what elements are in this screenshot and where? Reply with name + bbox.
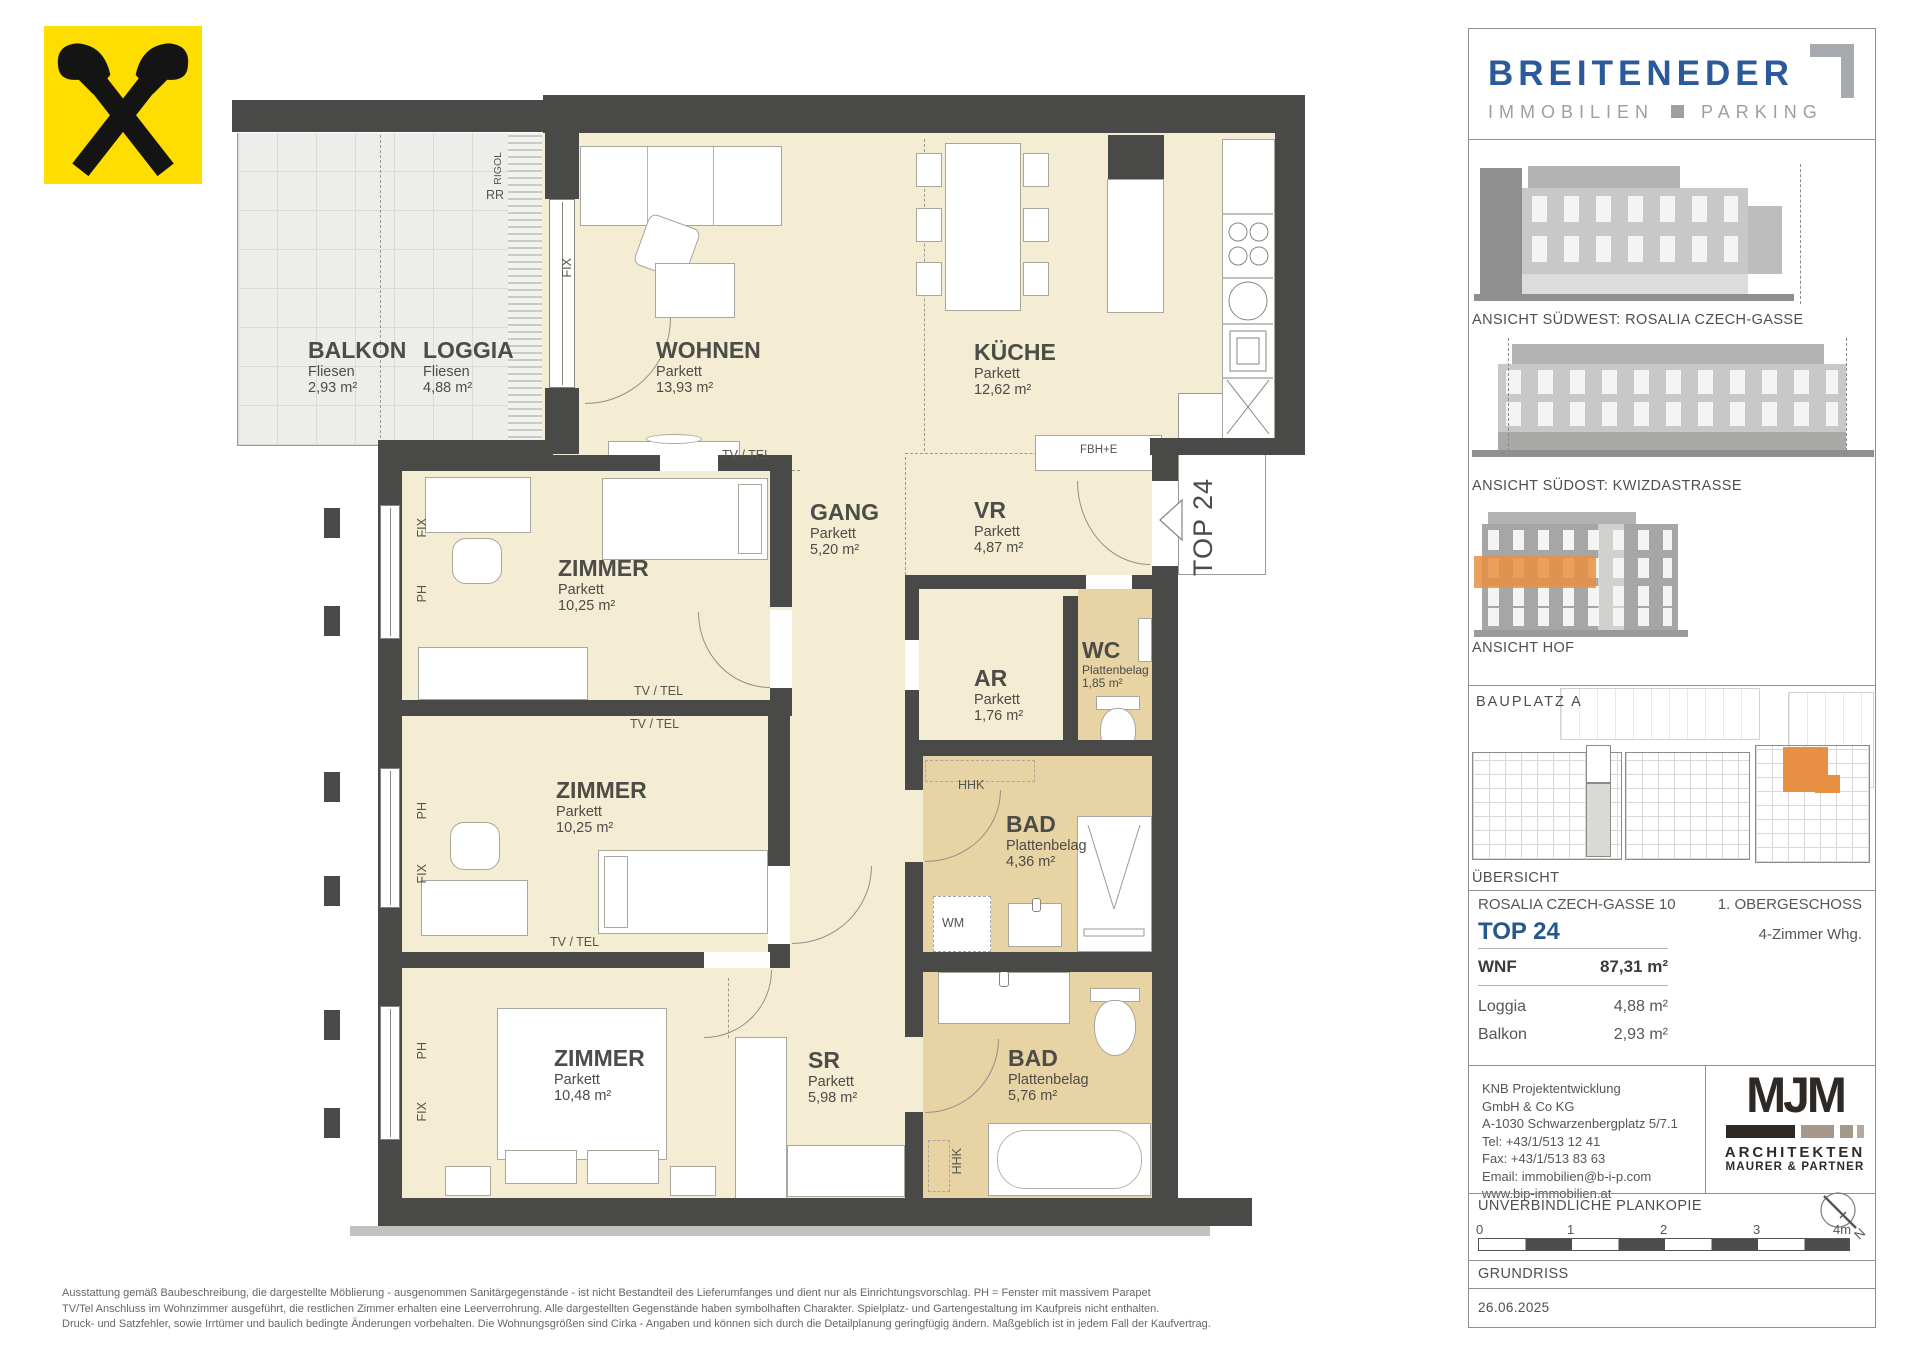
ph-label: PH (415, 585, 429, 602)
wall (1152, 455, 1178, 481)
rigol-label: RIGOL (492, 152, 504, 185)
wardrobe (735, 1037, 787, 1200)
window-fin (324, 1108, 340, 1138)
wall (543, 95, 1305, 133)
door-opening (704, 952, 770, 968)
drain-hatch (508, 133, 542, 445)
tv-tel-label: TV / TEL (630, 717, 679, 731)
room-label-zimmer-3: ZIMMER Parkett 10,48 m² (554, 1046, 645, 1104)
fix-label: FIX (415, 518, 429, 537)
room-floor: Parkett (556, 804, 647, 820)
fix-label: FIX (415, 864, 429, 883)
chair (1023, 262, 1049, 296)
room-area: 4,87 m² (974, 540, 1023, 556)
site-plan-label: BAUPLATZ A (1476, 694, 1583, 710)
pillow (738, 484, 762, 554)
bathtub-inner (997, 1130, 1142, 1189)
room-area: 10,25 m² (558, 598, 649, 614)
wall (400, 700, 788, 716)
contact-line: GmbH & Co KG (1482, 1098, 1698, 1116)
wall (905, 756, 923, 790)
site-stair-tower (1586, 745, 1611, 783)
plan-page: BALKON Fliesen 2,93 m² LOGGIA Fliesen 4,… (0, 0, 1920, 1357)
wall (1152, 1198, 1252, 1226)
wall (905, 862, 923, 952)
brand-category-parking: PARKING (1701, 102, 1823, 122)
chair (916, 262, 942, 296)
architect-initials: MJM (1722, 1067, 1868, 1125)
room-label-loggia: LOGGIA Fliesen 4,88 m² (423, 338, 514, 396)
room-label-vr: VR Parkett 4,87 m² (974, 498, 1023, 556)
elevation-block (1480, 168, 1522, 298)
shower-drain-icon (1078, 817, 1150, 950)
wall (1108, 135, 1164, 179)
wall (905, 972, 923, 1037)
room-floor: Plattenbelag (1082, 664, 1149, 677)
wall (1150, 438, 1305, 455)
project-floor: 1. OBERGESCHOSS (1660, 896, 1862, 913)
wall (1275, 95, 1305, 447)
bathtub (988, 1123, 1151, 1196)
room-name: BAD (1006, 812, 1087, 838)
window-fin (324, 772, 340, 802)
wardrobe (418, 647, 588, 700)
wall (770, 952, 790, 968)
balcony-loggia-tiles (237, 133, 509, 446)
wardrobe (787, 1145, 905, 1197)
door-opening (905, 640, 919, 690)
site-plan-caption: ÜBERSICHT (1472, 870, 1559, 886)
room-floor: Plattenbelag (1008, 1072, 1089, 1088)
project-address: ROSALIA CZECH-GASSE 10 (1478, 896, 1676, 913)
unit-type: 4-Zimmer Whg. (1660, 926, 1862, 943)
site-building (1625, 752, 1750, 860)
room-label-gang: GANG Parkett 5,20 m² (810, 500, 879, 558)
room-label-zimmer-1: ZIMMER Parkett 10,25 m² (558, 556, 649, 614)
pillow (604, 856, 628, 928)
elevation-ground-floor (1498, 432, 1846, 450)
room-label-zimmer-2: ZIMMER Parkett 10,25 m² (556, 778, 647, 836)
room-name: KÜCHE (974, 340, 1056, 366)
chair (916, 153, 942, 187)
chair (1023, 208, 1049, 242)
fix-label: FIX (560, 258, 574, 277)
elevation-hof-caption: ANSICHT HOF (1472, 640, 1574, 656)
fix-label: FIX (415, 1102, 429, 1121)
elevation-window-row (1506, 402, 1838, 426)
room-name: ZIMMER (554, 1046, 645, 1072)
window-fin (324, 876, 340, 906)
faucet (1032, 898, 1041, 912)
square-bullet-icon (1671, 105, 1684, 118)
disclaimer-line: Druck- und Satzfehler, sowie Irrtümer un… (62, 1317, 1211, 1333)
room-floor: Fliesen (423, 364, 514, 380)
kitchen-counter (1222, 139, 1275, 439)
sofa-cushion-line (647, 147, 648, 225)
room-name: BAD (1008, 1046, 1089, 1072)
north-letter: N (1851, 1225, 1868, 1242)
scale-bar: 0 1 2 3 4m (1478, 1222, 1850, 1251)
room-name: BALKON (308, 338, 406, 364)
scale-ticks: 0 1 2 3 4m (1478, 1222, 1850, 1238)
door-opening (660, 455, 718, 471)
unit-number-label: TOP 24 (1188, 478, 1219, 576)
balkon-row: Balkon 2,93 m² (1478, 1026, 1668, 1044)
plan-date: 26.06.2025 (1478, 1300, 1550, 1315)
brand-category-immobilien: IMMOBILIEN (1488, 102, 1654, 122)
room-name: AR (974, 666, 1023, 692)
room-area: 12,62 m² (974, 382, 1056, 398)
wall (905, 952, 1152, 972)
elevation-window-row (1506, 370, 1838, 394)
divider (1478, 985, 1668, 986)
room-floor: Plattenbelag (1006, 838, 1087, 854)
ph-label: PH (415, 802, 429, 819)
washbasin (1008, 903, 1062, 947)
wall (400, 952, 704, 968)
scale-tick: 0 (1476, 1222, 1483, 1237)
divider (1478, 948, 1668, 949)
desk-chair (450, 822, 500, 870)
unit-title: TOP 24 (1478, 918, 1560, 946)
room-floor: Parkett (558, 582, 649, 598)
room-floor: Parkett (974, 692, 1023, 708)
balcony-loggia-divider (380, 135, 381, 443)
wall (545, 133, 579, 199)
room-label-bad-1: BAD Plattenbelag 4,36 m² (1006, 812, 1087, 870)
balkon-value: 2,93 m² (1614, 1026, 1668, 1044)
faucet (999, 971, 1009, 987)
tv-tel-label: TV / TEL (634, 684, 683, 698)
chair (1023, 153, 1049, 187)
contact-line: Fax: +43/1/513 83 63 (1482, 1150, 1698, 1168)
elevation-suedost-caption: ANSICHT SÜDOST: KWIZDASTRASSE (1472, 478, 1742, 494)
architect-line2: MAURER & PARTNER (1722, 1161, 1868, 1173)
pillow (505, 1150, 577, 1184)
room-label-wc: WC Plattenbelag 1,85 m² (1082, 638, 1149, 691)
room-label-balkon: BALKON Fliesen 2,93 m² (308, 338, 406, 396)
window-fin (324, 508, 340, 538)
shower (1077, 816, 1152, 952)
elevation-ground-floor (1522, 274, 1748, 294)
room-area: 10,25 m² (556, 820, 647, 836)
ph-label: PH (415, 1042, 429, 1059)
nightstand (670, 1166, 716, 1196)
contact-line: Tel: +43/1/513 12 41 (1482, 1133, 1698, 1151)
elevation-window-row (1488, 586, 1672, 606)
property-line (1846, 338, 1847, 456)
elevation-ground-line (1474, 630, 1688, 637)
unit-highlight-orange (1815, 775, 1840, 793)
elevation-window-row (1532, 236, 1738, 262)
toilet (1094, 1000, 1136, 1056)
property-line (1508, 338, 1509, 456)
scale-tick: 4m (1833, 1222, 1851, 1237)
brand-categories: IMMOBILIEN PARKING (1488, 102, 1823, 123)
room-area: 1,85 m² (1082, 677, 1149, 690)
logo-bar-segment (1801, 1125, 1834, 1138)
window (380, 505, 400, 639)
wall (545, 388, 579, 454)
elevation-suedwest-caption: ANSICHT SÜDWEST: ROSALIA CZECH-GASSE (1472, 312, 1804, 328)
window (549, 199, 575, 388)
desk (421, 880, 528, 936)
elevation-roof (1528, 166, 1680, 188)
divider (1705, 1065, 1706, 1193)
scale-tick: 2 (1660, 1222, 1667, 1237)
washbasin-counter (938, 972, 1070, 1024)
door-opening (770, 610, 792, 688)
loggia-row: Loggia 4,88 m² (1478, 998, 1668, 1016)
room-floor: Parkett (554, 1072, 645, 1088)
scale-tick: 3 (1753, 1222, 1760, 1237)
room-area: 4,36 m² (1006, 854, 1087, 870)
elevation-window-row (1488, 608, 1672, 626)
logo-bar-segment (1840, 1125, 1853, 1138)
nightstand (445, 1166, 491, 1196)
hhk-label: HHK (950, 1148, 964, 1174)
room-floor: Parkett (974, 524, 1023, 540)
wall (378, 440, 553, 456)
tv-tel-label: TV / TEL (722, 448, 771, 462)
wall (905, 589, 919, 640)
room-floor: Parkett (810, 526, 879, 542)
room-name: GANG (810, 500, 879, 526)
wall (770, 455, 792, 607)
contact-line: KNB Projektentwicklung (1482, 1080, 1698, 1098)
room-label-sr: SR Parkett 5,98 m² (808, 1048, 857, 1106)
floor-plan: BALKON Fliesen 2,93 m² LOGGIA Fliesen 4,… (0, 0, 1340, 1290)
fbh-e-label: FBH+E (1080, 444, 1117, 456)
elevation-window-row (1532, 196, 1738, 222)
room-label-wohnen: WOHNEN Parkett 13,93 m² (656, 338, 761, 396)
gang-vr-divider (905, 457, 906, 575)
wnf-label: WNF (1478, 957, 1517, 976)
desk (425, 477, 531, 533)
disclaimer: Ausstattung gemäß Baubeschreibung, die d… (62, 1286, 1211, 1333)
unit-highlight-orange (1474, 556, 1596, 588)
room-name: VR (974, 498, 1023, 524)
room-label-ar: AR Parkett 1,76 m² (974, 666, 1023, 724)
wall (1152, 566, 1178, 1198)
room-area: 2,93 m² (308, 380, 406, 396)
room-name: LOGGIA (423, 338, 514, 364)
room-floor: Parkett (656, 364, 761, 380)
architect-logo-bar (1726, 1125, 1864, 1138)
room-area: 1,76 m² (974, 708, 1023, 724)
desk-chair (452, 538, 502, 584)
contact-email[interactable]: Email: immobilien@b-i-p.com (1482, 1168, 1698, 1186)
wall (378, 1198, 1178, 1226)
coffee-table (655, 263, 735, 318)
rr-label: RR (486, 188, 504, 202)
room-floor: Parkett (974, 366, 1056, 382)
door-opening (768, 866, 790, 944)
plancopy-note: UNVERBINDLICHE PLANKOPIE (1478, 1198, 1702, 1214)
tv-tel-label: TV / TEL (550, 935, 599, 949)
drawing-type-label: GRUNDRISS (1478, 1266, 1569, 1282)
property-line (1800, 164, 1801, 304)
scale-tick: 1 (1567, 1222, 1574, 1237)
entrance-direction-icon (1158, 498, 1184, 542)
facade-strip (350, 1226, 1210, 1236)
room-area: 10,48 m² (554, 1088, 645, 1104)
sofa-cushion-line (713, 147, 714, 225)
wall (1063, 596, 1078, 756)
wall (232, 100, 545, 132)
room-label-bad-2: BAD Plattenbelag 5,76 m² (1008, 1046, 1089, 1104)
room-area: 4,88 m² (423, 380, 514, 396)
room-area: 5,76 m² (1008, 1088, 1089, 1104)
sofa (580, 146, 782, 226)
developer-contact: KNB Projektentwicklung GmbH & Co KG A-10… (1482, 1080, 1698, 1203)
window (380, 768, 400, 908)
room-name: ZIMMER (558, 556, 649, 582)
architect-line1: ARCHITEKTEN (1722, 1144, 1868, 1161)
hhk-label: HHK (958, 778, 984, 792)
room-name: WC (1082, 638, 1149, 664)
kitchen-appliances-icon (1223, 140, 1273, 437)
brand-box: BREITENEDER IMMOBILIEN PARKING (1468, 28, 1876, 140)
room-area: 5,20 m² (810, 542, 879, 558)
logo-bar-segment (1857, 1125, 1864, 1138)
pillow (587, 1150, 659, 1184)
chair (916, 208, 942, 242)
architect-logo: MJM ARCHITEKTEN MAURER & PARTNER (1722, 1068, 1868, 1173)
room-floor: Parkett (808, 1074, 857, 1090)
room-floor: Fliesen (308, 364, 406, 380)
window (380, 1006, 400, 1140)
elevation-ground-line (1472, 450, 1874, 457)
scale-bar-segments (1478, 1238, 1850, 1251)
room-name: SR (808, 1048, 857, 1074)
elevation-window-row (1488, 530, 1672, 550)
brand-name: BREITENEDER (1488, 54, 1794, 94)
balkon-label: Balkon (1478, 1026, 1527, 1043)
brand-corner-icon (1810, 44, 1854, 98)
wall (905, 740, 1152, 756)
wnf-row: WNF 87,31 m² (1478, 957, 1668, 977)
wall (905, 1112, 923, 1198)
logo-bar-segment (1726, 1125, 1795, 1138)
window-fin (324, 606, 340, 636)
wall (905, 690, 919, 756)
elevation-balconies (1748, 206, 1782, 274)
loggia-value: 4,88 m² (1614, 998, 1668, 1016)
dining-table (945, 143, 1021, 311)
site-gray-block (1586, 783, 1611, 857)
wall (768, 716, 790, 866)
room-name: WOHNEN (656, 338, 761, 364)
elevation-ground-line (1474, 294, 1794, 301)
wnf-value: 87,31 m² (1600, 957, 1668, 977)
hhk-radiator (928, 1140, 950, 1192)
tv (646, 434, 702, 444)
room-label-kueche: KÜCHE Parkett 12,62 m² (974, 340, 1056, 398)
disclaimer-line: Ausstattung gemäß Baubeschreibung, die d… (62, 1286, 1211, 1302)
disclaimer-line: TV/Tel Anschluss im Wohnzimmer ausgeführ… (62, 1302, 1211, 1318)
room-area: 13,93 m² (656, 380, 761, 396)
site-context-faint (1560, 688, 1760, 740)
window-fin (324, 1010, 340, 1040)
room-name: ZIMMER (556, 778, 647, 804)
contact-line: A-1030 Schwarzenbergplatz 5/7.1 (1482, 1115, 1698, 1133)
kitchen-island (1107, 179, 1164, 313)
door-opening (1086, 575, 1132, 589)
elevation-roof (1512, 344, 1824, 364)
wm-label: WM (942, 916, 964, 930)
loggia-label: Loggia (1478, 998, 1526, 1015)
room-area: 5,98 m² (808, 1090, 857, 1106)
